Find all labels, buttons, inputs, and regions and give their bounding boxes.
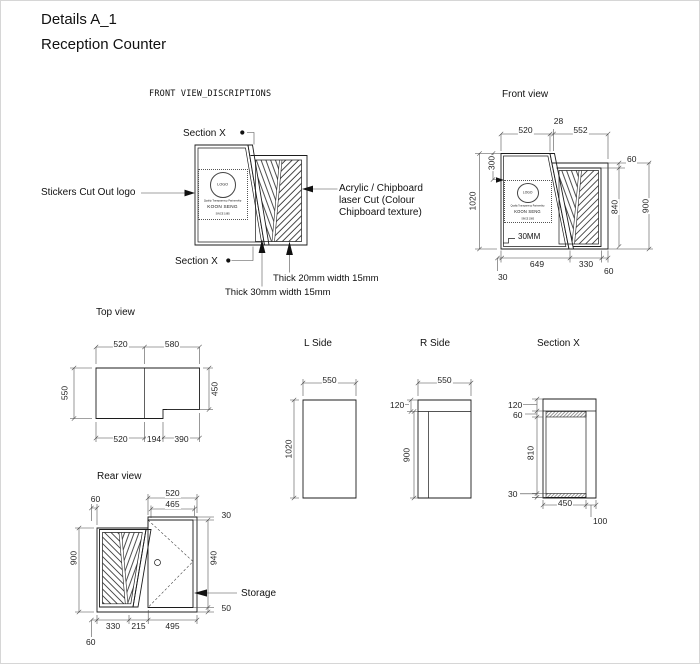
tv-dim-580: 580: [164, 340, 180, 349]
sx-dim-100: 100: [592, 517, 608, 526]
top-view-drawing: [70, 345, 213, 442]
rs-dim-900: 900: [402, 447, 411, 463]
acrylic-callout-line3: Chipboard texture): [339, 207, 422, 218]
rs-dim-120: 120: [389, 401, 405, 410]
sx-dim-60: 60: [512, 411, 523, 420]
fv-dim-60-bottom: 60: [603, 267, 614, 276]
tv-dim-550: 550: [60, 385, 69, 401]
thick-20mm-callout: Thick 20mm width 15mm: [273, 274, 379, 284]
sx-dim-810: 810: [526, 444, 535, 460]
fv-dim-60-top: 60: [626, 155, 637, 164]
fv-logo-circle: LOGO: [517, 183, 539, 203]
stickers-callout: Stickers Cut Out logo: [41, 187, 135, 198]
fv-dim-900: 900: [641, 198, 650, 214]
fv-dim-840: 840: [610, 199, 619, 215]
r-side-label: R Side: [420, 338, 450, 349]
rv-dim-215: 215: [130, 622, 146, 631]
rv-dim-60-bottom: 60: [85, 638, 96, 647]
front-view-label: Front view: [502, 89, 548, 100]
ls-dim-1020: 1020: [284, 439, 293, 460]
section-x-callout-bottom: Section X: [175, 256, 218, 267]
fv-logo-name: KOON SENG: [515, 210, 542, 215]
sheet-title-line2: Reception Counter: [41, 37, 166, 54]
thick-30mm-callout: Thick 30mm width 15mm: [225, 288, 331, 298]
line-art: [1, 1, 700, 664]
logo-circle: LOGO: [210, 172, 236, 198]
front-view-drawing: [475, 129, 653, 271]
fv-dim-1020: 1020: [468, 191, 477, 212]
sheet-title-line1: Details A_1: [41, 12, 117, 29]
logo-mark: LOGO: [218, 183, 229, 187]
front-desc-label: FRONT VIEW_DISCRIPTIONS: [149, 90, 271, 99]
sx-dim-30: 30: [507, 490, 518, 499]
rv-dim-60-top: 60: [90, 495, 101, 504]
storage-callout: Storage: [241, 588, 276, 599]
tv-dim-450: 450: [210, 381, 219, 397]
rv-dim-50: 50: [221, 604, 232, 613]
rv-dim-940: 940: [209, 550, 218, 566]
drawing-sheet: Details A_1 Reception Counter FRONT VIEW…: [0, 0, 700, 664]
section-x-label: Section X: [537, 338, 580, 349]
fv-dim-30: 30: [497, 273, 508, 282]
sx-dim-120: 120: [507, 401, 523, 410]
r-side-drawing: [404, 379, 473, 500]
fv-logo-tagline: Quality Transparency Partnership: [511, 205, 545, 207]
rv-dim-30: 30: [221, 511, 232, 520]
ls-dim-550: 550: [321, 376, 337, 385]
fv-dim-552: 552: [572, 126, 588, 135]
fv-logo-sticker-panel: LOGO Quality Transparency Partnership KO…: [504, 180, 552, 223]
logo-tagline: Quality Transparency Partnership: [204, 200, 241, 203]
tv-dim-520-bottom: 520: [112, 435, 128, 444]
fv-dim-330: 330: [578, 260, 594, 269]
fv-logo-mark: LOGO: [523, 191, 533, 194]
section-x-callout-top: Section X: [183, 128, 226, 139]
tv-dim-390: 390: [173, 435, 189, 444]
rv-dim-900: 900: [69, 550, 78, 566]
l-side-label: L Side: [304, 338, 332, 349]
rv-dim-465: 465: [164, 500, 180, 509]
rs-dim-550: 550: [436, 376, 452, 385]
tv-dim-194: 194: [146, 435, 162, 444]
acrylic-callout-line2: laser Cut (Colour: [339, 195, 415, 206]
fv-dim-300: 300: [487, 155, 496, 171]
fv-dim-649: 649: [529, 260, 545, 269]
logo-name: KOON SENG: [208, 205, 238, 211]
fv-note-30mm: 30MM: [518, 233, 540, 242]
fv-logo-subtext: SINCE 1985: [522, 218, 535, 220]
rv-dim-520: 520: [164, 489, 180, 498]
rv-dim-330: 330: [105, 622, 121, 631]
rear-view-label: Rear view: [97, 471, 141, 482]
sx-dim-450: 450: [557, 499, 573, 508]
logo-subtext: SINCE 1985: [216, 213, 230, 216]
top-view-label: Top view: [96, 307, 135, 318]
l-side-drawing: [290, 379, 358, 500]
tv-dim-520-top: 520: [112, 340, 128, 349]
rv-dim-495: 495: [164, 622, 180, 631]
acrylic-callout-line1: Acrylic / Chipboard: [339, 183, 423, 194]
fv-dim-520: 520: [517, 126, 533, 135]
fv-dim-28: 28: [553, 117, 564, 126]
logo-sticker-panel: LOGO Quality Transparency Partnership KO…: [198, 169, 248, 220]
